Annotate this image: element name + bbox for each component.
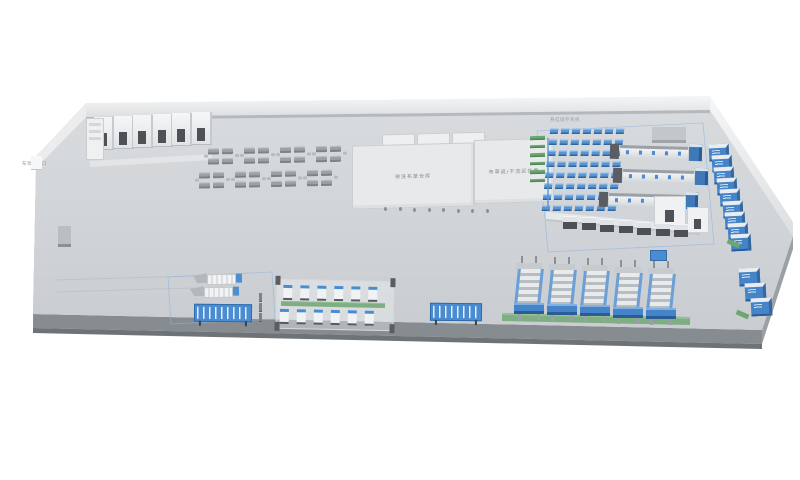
desk-cluster [199, 171, 226, 190]
storage-rack-cell [567, 172, 576, 178]
utility-room [192, 112, 212, 144]
roller-mark [641, 199, 644, 203]
press-foot [636, 318, 639, 324]
press-ribbed-panel [547, 270, 577, 306]
corner-post [390, 278, 395, 287]
pillar-base [384, 207, 387, 211]
press-ribbed-panel [580, 271, 610, 307]
feeder-blue-cap [233, 287, 239, 296]
roller-mark [615, 198, 618, 202]
sewing-station [334, 286, 343, 301]
room-door-opening [158, 130, 166, 143]
ironer-line-1 [610, 142, 702, 162]
folder-end-unit [695, 168, 708, 185]
green-shelf [530, 153, 545, 157]
support-post [259, 313, 262, 321]
storage-rack-cell [560, 139, 569, 145]
washer-vent-grille [723, 195, 731, 199]
warehouse-label: 待洗布草仓库 [395, 172, 431, 180]
press-blue-base [514, 303, 544, 314]
chair [276, 153, 280, 156]
storage-rack-cell [575, 205, 584, 211]
hanging-system-label: 悬挂储存系统 [550, 117, 580, 123]
press-ribbed-panel [646, 274, 676, 310]
stairwell-block [86, 118, 104, 160]
room-door-opening [119, 132, 127, 145]
chair [204, 155, 208, 158]
small-room-right-2 [687, 207, 709, 233]
desk-cluster [307, 169, 334, 188]
folder-machine [582, 217, 596, 230]
press-foot [570, 315, 573, 321]
feeder-hopper [190, 286, 204, 296]
storage-rack-cell [580, 150, 589, 156]
roller-mark [629, 174, 632, 178]
storage-rack-cell [547, 150, 556, 156]
roller-mark [626, 150, 629, 154]
roller-mark [655, 175, 658, 179]
storage-rack-cell [571, 139, 580, 145]
green-shelf [530, 136, 545, 140]
utility-room [153, 114, 173, 146]
chair [226, 178, 230, 181]
sewing-station [351, 286, 360, 301]
folder-machine [600, 219, 614, 232]
blue-sorting-table-left [194, 304, 252, 323]
storage-rack-cell [555, 183, 564, 189]
sewing-station [365, 311, 374, 326]
press-foot [584, 316, 587, 322]
left-wall-door [31, 156, 42, 169]
green-shelf [530, 161, 545, 165]
roller-mark [639, 151, 642, 155]
storage-rack-cell [561, 128, 570, 134]
press-ribbed-panel [613, 273, 643, 309]
folder-machine [619, 220, 633, 233]
sewing-station [317, 286, 326, 301]
storage-rack-cell [591, 150, 600, 156]
chair [312, 152, 316, 155]
pillar-base [457, 209, 460, 213]
feeder-body [204, 287, 233, 299]
storage-rack-cell [605, 128, 614, 134]
roller-mark [681, 176, 684, 180]
desk-row-2 [199, 168, 349, 191]
feeder-hopper [193, 273, 207, 283]
ironer-body [620, 145, 688, 159]
washer-vent-grille [754, 304, 762, 308]
storage-rack-cell [578, 172, 587, 178]
roller-mark [652, 151, 655, 155]
desk-cluster [244, 146, 271, 165]
roller-mark [642, 175, 645, 179]
green-shelf [530, 178, 545, 182]
table-leg [199, 321, 201, 326]
press-foot [551, 315, 554, 321]
folder-machine [656, 223, 670, 236]
desk-row-1 [208, 144, 358, 167]
sewing-station [280, 309, 289, 324]
utility-room [133, 115, 153, 147]
room-door-opening [177, 129, 185, 142]
chair [262, 177, 266, 180]
storage-rack-cell [550, 128, 559, 134]
ironer-line-2 [613, 166, 708, 186]
roller-mark [665, 151, 668, 155]
green-shelf [530, 170, 545, 174]
desk-cluster [271, 169, 298, 188]
chair [235, 154, 239, 157]
feeder-blue-cap [236, 274, 242, 283]
storage-rack-cell [549, 139, 558, 145]
chair [267, 177, 271, 180]
electrical-cabinet [58, 226, 71, 247]
storage-rack-cell [587, 194, 596, 200]
sewing-station [283, 285, 292, 300]
storage-rack-cell [590, 161, 599, 167]
sewing-station [348, 310, 357, 325]
sewing-station [368, 287, 377, 302]
table-leg [475, 320, 477, 325]
feeder-body [207, 274, 236, 286]
feeder-unit [599, 192, 608, 207]
folder-end-unit [689, 144, 702, 161]
press-foot [537, 314, 540, 320]
sewing-station [297, 309, 306, 324]
storage-rack-cell [557, 161, 566, 167]
storage-rack-cell [564, 205, 573, 211]
sewing-station [300, 285, 309, 300]
washer-vent-grille [715, 161, 723, 165]
storage-rack-cell [569, 150, 578, 156]
tunnel-press-machine [646, 261, 676, 325]
roller-mark [668, 175, 671, 179]
press-blue-cap [650, 250, 667, 261]
utility-room [172, 113, 192, 145]
washer-vent-grille [748, 289, 756, 293]
storage-rack-cell [572, 128, 581, 134]
blue-sorting-table-center [430, 303, 482, 321]
tunnel-press-machine [613, 260, 643, 324]
storage-rack-cell [542, 205, 551, 211]
desk-cluster [316, 145, 343, 164]
press-ribbed-panel [514, 269, 544, 305]
green-shelving-column [530, 136, 546, 188]
table-slats [197, 307, 249, 319]
table-leg [435, 320, 437, 325]
chair [195, 179, 199, 182]
tunnel-press-machine [514, 256, 544, 320]
desk-cluster [208, 147, 235, 166]
chair [298, 176, 302, 179]
tunnel-press-machine [580, 258, 610, 322]
chair [240, 154, 244, 157]
ironer-body [623, 169, 694, 183]
building-shell [0, 0, 800, 480]
storage-rack-cell [588, 183, 597, 189]
table-slats [433, 306, 479, 318]
washer-vent-grille [742, 274, 750, 278]
roller-mark [628, 198, 631, 202]
storage-rack-cell [594, 128, 603, 134]
storage-rack-cell [601, 161, 610, 167]
press-foot [617, 318, 620, 324]
press-foot [669, 319, 672, 325]
storage-rack-cell [582, 139, 591, 145]
washer-vent-grille [712, 150, 720, 154]
spreader-feeder-machine [193, 272, 242, 286]
folder-machine [637, 222, 651, 235]
chair [303, 176, 307, 179]
storage-rack-cell [616, 128, 625, 134]
storage-rack-cell [554, 194, 563, 200]
storage-rack-cell [589, 172, 598, 178]
rack-rail-pipe [547, 138, 549, 210]
storage-rack-cell [593, 139, 602, 145]
feeder-unit [613, 168, 622, 183]
pillar-base [399, 207, 402, 211]
storage-rack-cell [553, 205, 562, 211]
washer-vent-grille [717, 173, 725, 177]
support-post [259, 303, 262, 311]
desk-cluster [235, 170, 262, 189]
table-leg [245, 321, 247, 326]
pillar-base [428, 208, 431, 212]
workstation-enclosure [275, 279, 394, 331]
storage-rack-cell [556, 172, 565, 178]
press-blue-base [547, 304, 577, 315]
press-blue-base [613, 307, 643, 318]
spreader-feeder-machine [190, 285, 239, 299]
storage-rack-cell [568, 161, 577, 167]
green-shelf [530, 144, 545, 148]
chair [231, 178, 235, 181]
factory-layout-3d-view: 布草出入口 [0, 0, 800, 480]
storage-rack-cell [566, 183, 575, 189]
room-door-opening [197, 128, 205, 141]
sewing-station [314, 310, 323, 325]
linen-warehouse-room: 待洗布草仓库 [352, 142, 474, 209]
storage-rack-cell [577, 183, 586, 189]
tunnel-press-machine [547, 257, 577, 321]
chair [334, 176, 338, 179]
pillar-base [486, 209, 489, 213]
room-door-opening [694, 219, 701, 229]
washer-vent-grille [720, 184, 728, 188]
folder-machine [563, 216, 577, 229]
utility-room [114, 116, 134, 148]
storage-rack-cell [583, 128, 592, 134]
pillar-base [471, 209, 474, 213]
storage-rack-cell [558, 150, 567, 156]
storage-rack-cell [576, 194, 585, 200]
press-blue-base [580, 305, 610, 316]
chair [343, 152, 347, 155]
green-aisle-strip [281, 301, 385, 308]
chair [307, 152, 311, 155]
room-door-opening [138, 131, 146, 144]
storage-rack-cell [600, 172, 609, 178]
ahu-unit [652, 127, 686, 143]
corner-post [275, 276, 280, 285]
press-foot [650, 319, 653, 325]
press-foot [603, 316, 606, 322]
feeder-unit [610, 144, 619, 159]
storage-rack-cell [586, 205, 595, 211]
folder-machine [674, 224, 688, 237]
storage-rack-cell [599, 183, 608, 189]
pillar-base [413, 208, 416, 212]
sewing-station [331, 310, 340, 325]
corner-post [389, 324, 394, 333]
washer-extractor [751, 297, 773, 316]
support-post [259, 293, 262, 301]
press-blue-base [646, 308, 676, 319]
roller-mark [678, 152, 681, 156]
storage-rack-cell [579, 161, 588, 167]
washer-vent-grille [728, 218, 736, 222]
press-foot [518, 314, 521, 320]
desk-cluster [280, 145, 307, 164]
storage-rack-cell [565, 194, 574, 200]
washer-vent-grille [725, 206, 733, 210]
washer-vent-grille [731, 229, 739, 233]
room-door-opening [665, 210, 674, 222]
small-room-right-1 [654, 196, 686, 226]
chair [271, 153, 275, 156]
